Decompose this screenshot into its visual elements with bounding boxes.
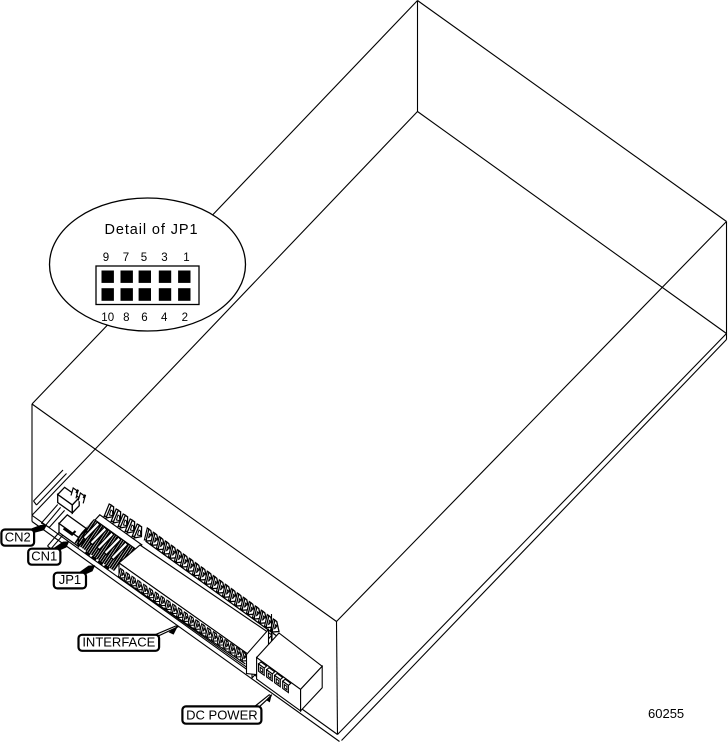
svg-text:Detail of JP1: Detail of JP1 [105,222,199,238]
svg-text:CN2: CN2 [5,530,31,545]
svg-text:60255: 60255 [648,706,684,721]
svg-text:DC POWER: DC POWER [186,708,258,723]
svg-text:INTERFACE: INTERFACE [82,635,155,650]
svg-text:CN1: CN1 [31,549,57,564]
svg-text:JP1: JP1 [59,572,81,587]
